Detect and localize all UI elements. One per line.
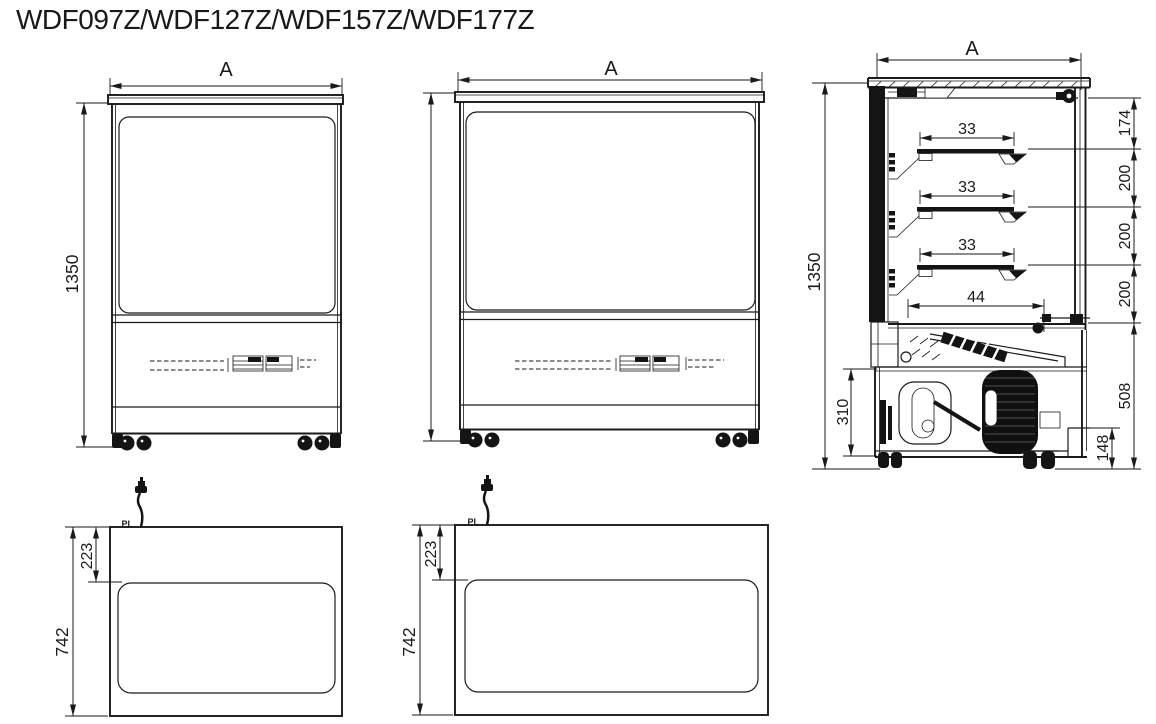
- height-dimension-label: 1350: [804, 252, 824, 291]
- power-plug-icon: [481, 475, 493, 525]
- spec-label-strip: [150, 356, 316, 372]
- hatch-marks: [875, 82, 1077, 88]
- back-panel: [869, 86, 885, 322]
- casters: [460, 430, 759, 448]
- height-dimension-unlabeled: [423, 93, 468, 441]
- cabinet-outline: [455, 92, 764, 430]
- deck-dimension: 44: [908, 289, 1044, 332]
- casters: [878, 451, 1058, 469]
- power-plug-icon: [135, 477, 147, 527]
- offset-dimension-label: 223: [79, 543, 96, 570]
- shelf-dimension-label: 33: [958, 121, 976, 138]
- width-dimension: A: [110, 59, 342, 96]
- plan-view-large: PL 742 223: [399, 475, 768, 715]
- width-dimension-label: A: [965, 38, 979, 60]
- segment-dimension-label: 200: [1117, 281, 1134, 308]
- evaporator-grille: [942, 333, 1006, 361]
- glass-top-outline: [118, 583, 335, 693]
- shelf: 33: [889, 179, 1026, 237]
- drawing-canvas: WDF097Z/WDF127Z/WDF157Z/WDF177Z A 1350: [0, 0, 1156, 724]
- segment-dimension-label: 174: [1117, 110, 1134, 137]
- width-dimension-label: A: [219, 59, 233, 81]
- machine-dimension-label: 310: [835, 399, 852, 426]
- top-cap: [455, 92, 764, 102]
- depth-dimension-label: 742: [399, 627, 419, 656]
- height-dimension: 1350: [62, 103, 114, 447]
- technical-drawing: A 1350: [0, 0, 1156, 724]
- machine-dimension: 310: [835, 369, 877, 456]
- casters: [112, 434, 341, 451]
- width-dimension: A: [877, 38, 1081, 90]
- door-hinge: [1056, 89, 1076, 103]
- condenser-fan: [982, 370, 1038, 454]
- back-duct: [871, 322, 898, 367]
- drain-pipe: [901, 352, 911, 362]
- segment-dimension-label: 508: [1117, 383, 1134, 410]
- shelf-dimension-label: 33: [958, 237, 976, 254]
- front-view-large: A: [423, 58, 764, 448]
- cabinet-outline: [108, 95, 343, 434]
- compressor: [880, 382, 951, 444]
- segment-dimension-label: 200: [1117, 223, 1134, 250]
- glass-door: [466, 112, 755, 310]
- glass-top-outline: [465, 580, 758, 692]
- light-fixture: [888, 88, 955, 98]
- segment-dimension-label: 200: [1117, 165, 1134, 192]
- shelf-dimension-label: 33: [958, 179, 976, 196]
- shelf: 33: [889, 237, 1026, 295]
- glass-door: [119, 117, 335, 313]
- top-panel: [868, 78, 1090, 88]
- depth-dimension-label: 742: [52, 627, 72, 656]
- shelf: 33: [889, 121, 1026, 179]
- deck-dimension-label: 44: [967, 289, 985, 306]
- plan-view-small: PL 742 223: [52, 477, 342, 716]
- top-cap: [108, 95, 343, 104]
- mount-bracket: [1040, 412, 1060, 428]
- front-view-small: A 1350: [62, 59, 343, 451]
- base-height-dimension-label: 148: [1095, 435, 1112, 462]
- side-view: A 1350: [804, 38, 1141, 469]
- separator-band: [112, 315, 341, 323]
- width-dimension-label: A: [604, 58, 618, 80]
- spec-label-strip: [515, 356, 724, 371]
- separator-band: [460, 312, 759, 320]
- base-height-dimension: 148: [1068, 428, 1120, 469]
- front-glass: [1033, 88, 1091, 334]
- offset-dimension-label: 223: [423, 541, 440, 568]
- width-dimension: A: [458, 58, 762, 93]
- height-dimension-label: 1350: [62, 254, 82, 293]
